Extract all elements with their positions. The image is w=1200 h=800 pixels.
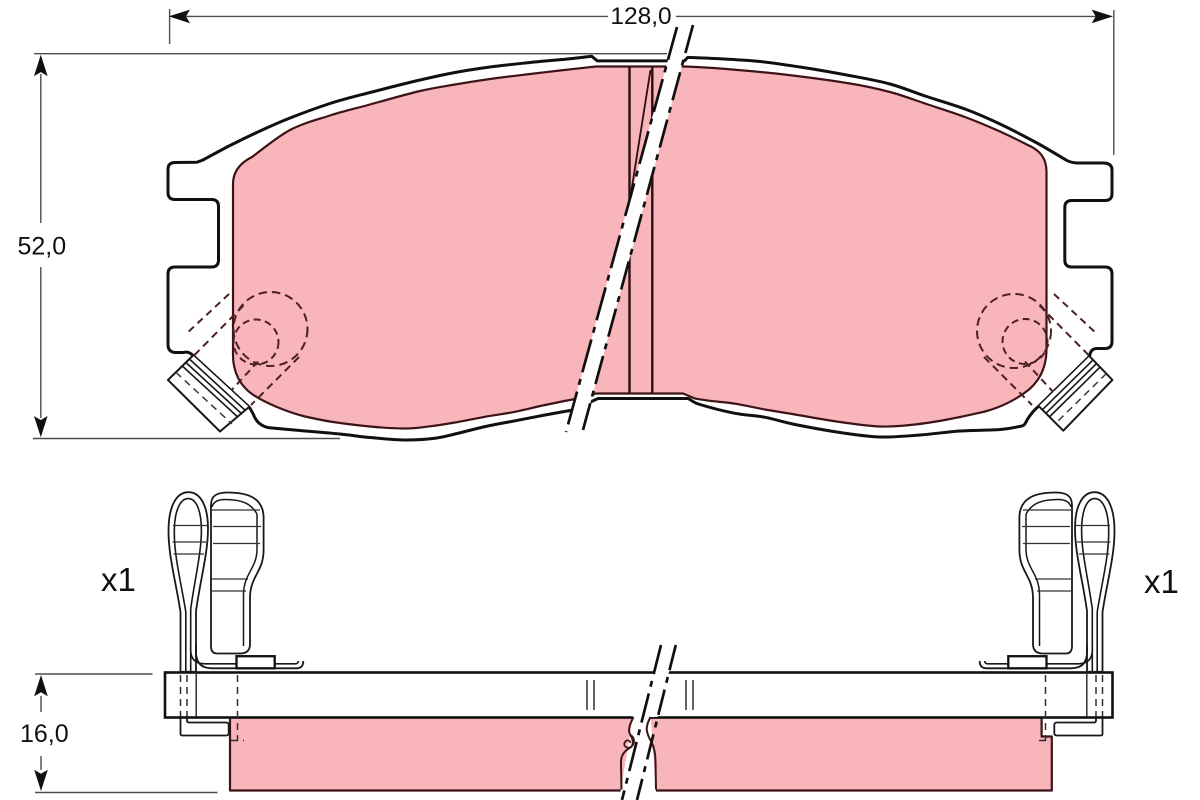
svg-text:52,0: 52,0 [18,233,67,261]
svg-text:16,0: 16,0 [20,720,69,748]
svg-text:128,0: 128,0 [610,3,671,30]
svg-text:x1: x1 [101,561,136,598]
svg-text:x1: x1 [1144,563,1179,600]
